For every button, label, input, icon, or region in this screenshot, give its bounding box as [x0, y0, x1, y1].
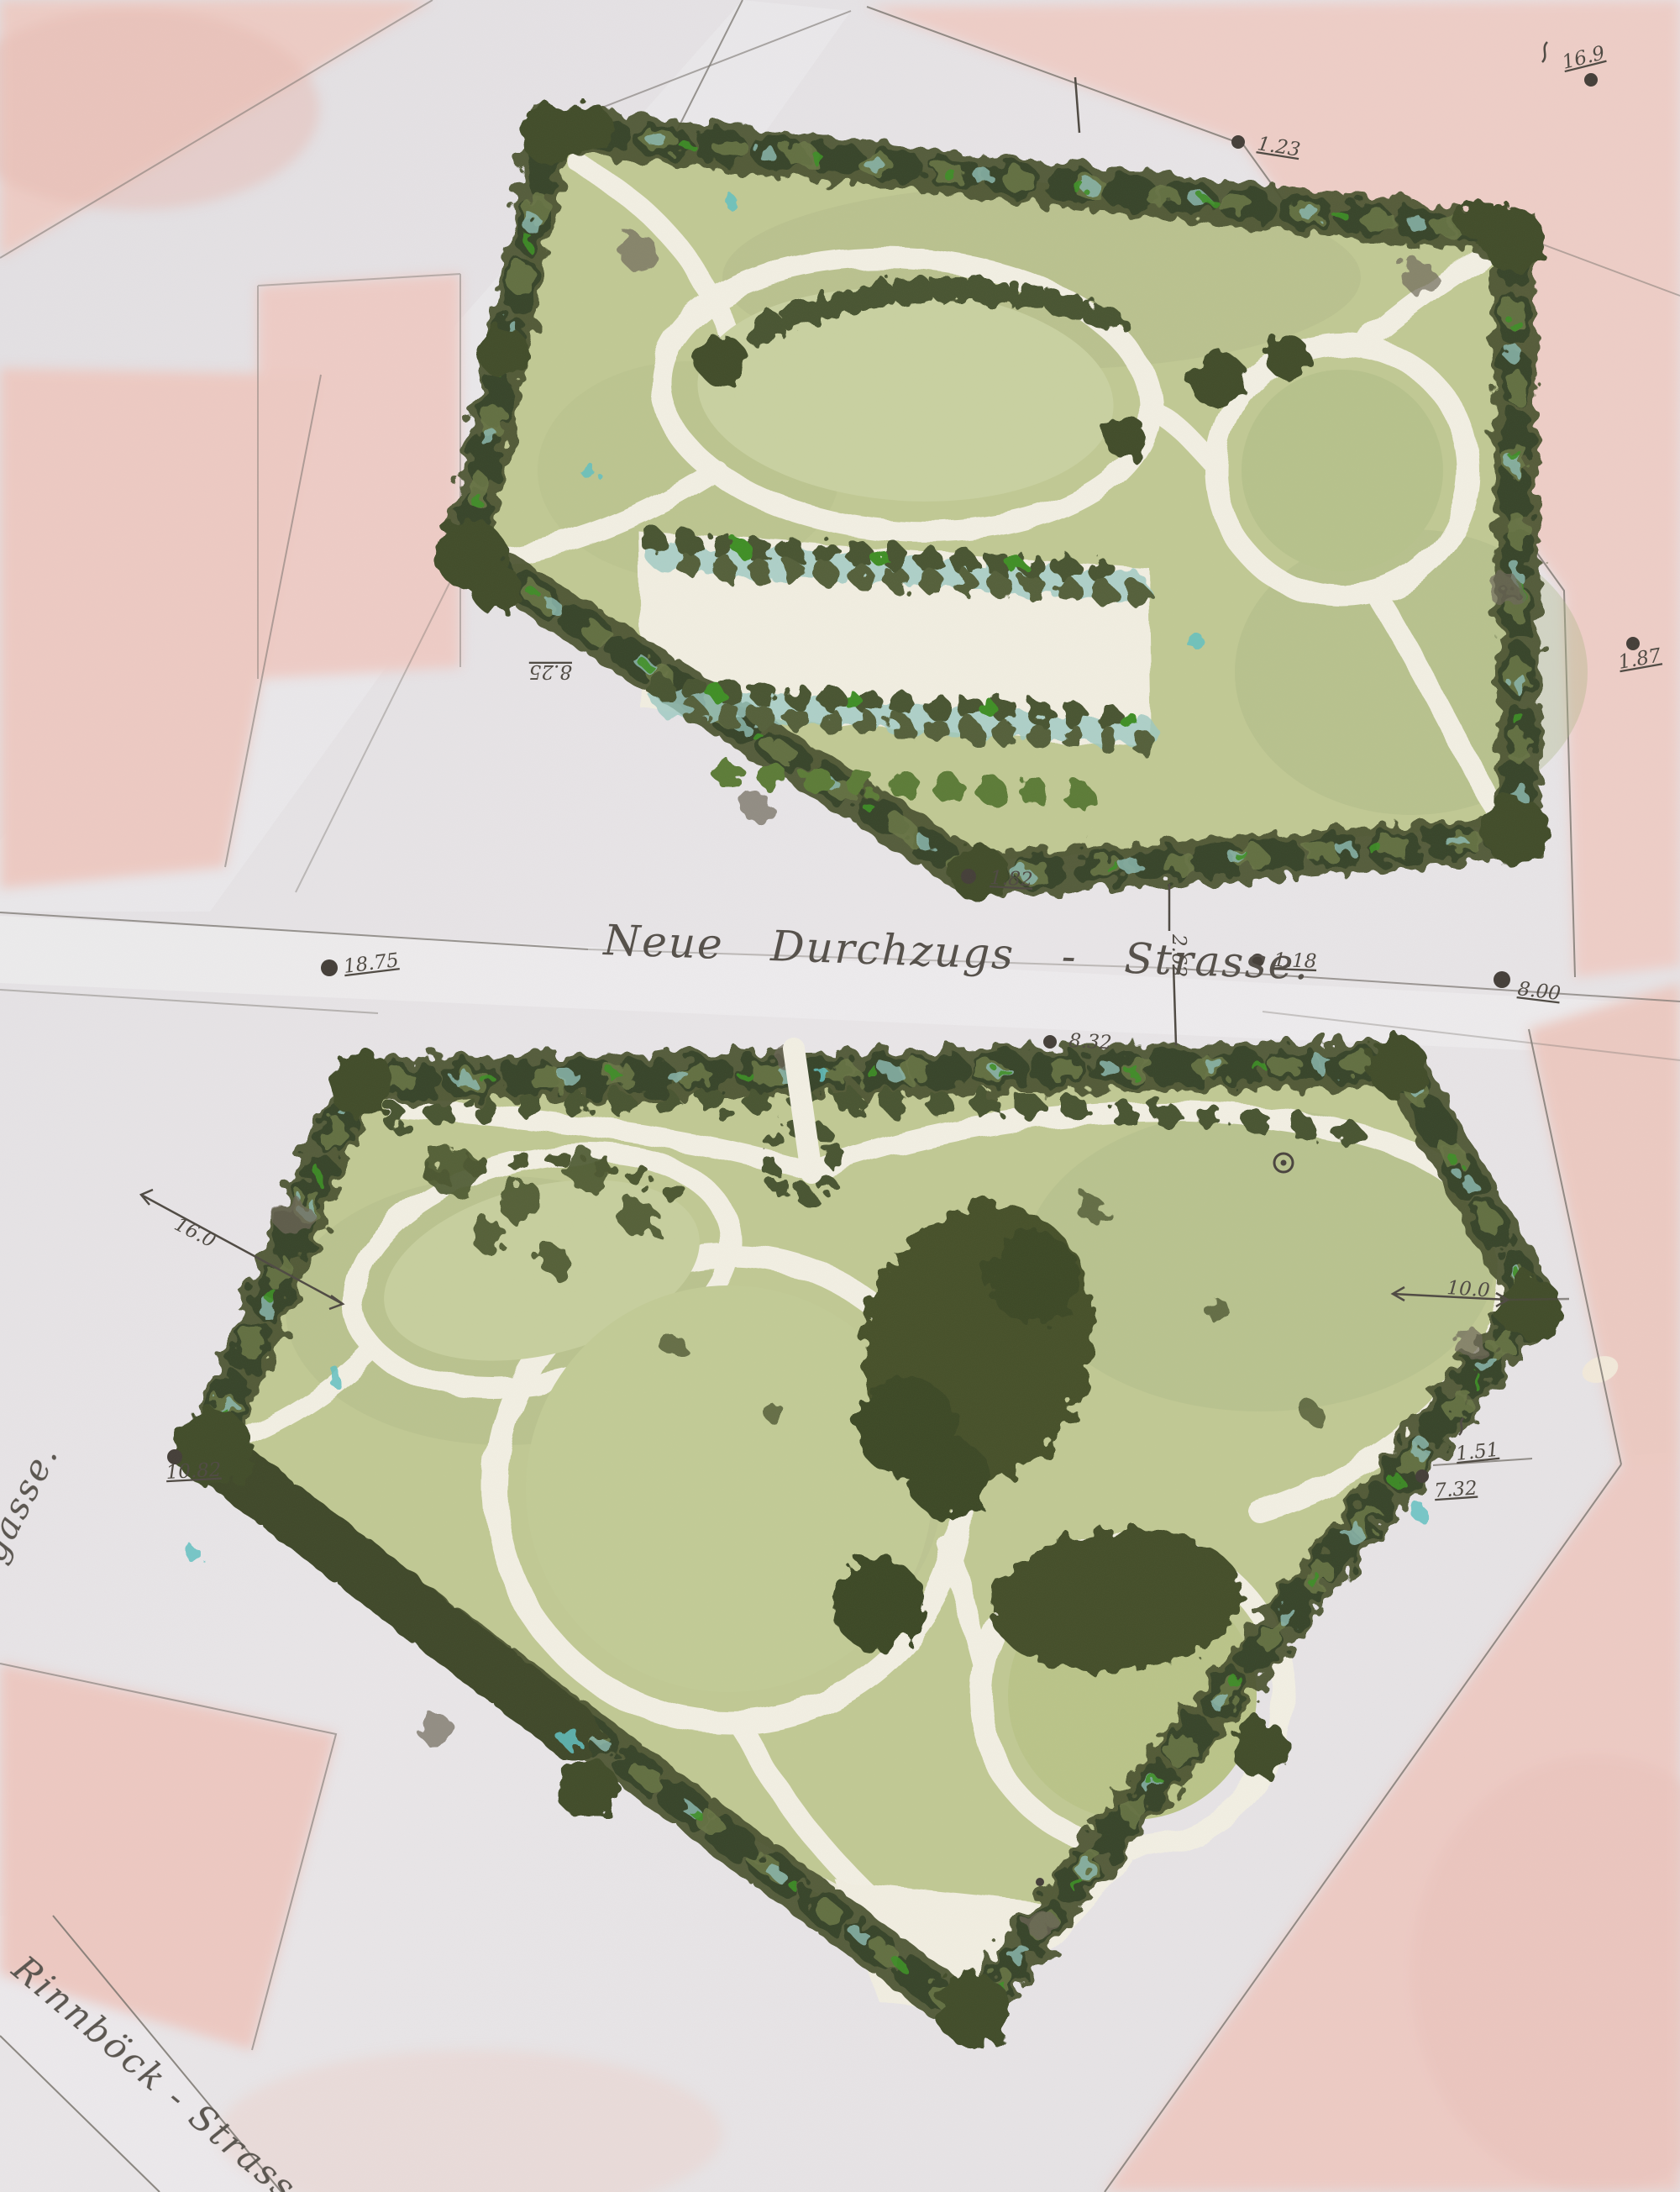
paper-grain-overlay	[0, 0, 1680, 2192]
scanned-plan-page: Neue Durchzugs - Strasse. ayergasse. Rin…	[0, 0, 1680, 2192]
map-canvas: Neue Durchzugs - Strasse. ayergasse. Rin…	[0, 0, 1680, 2192]
